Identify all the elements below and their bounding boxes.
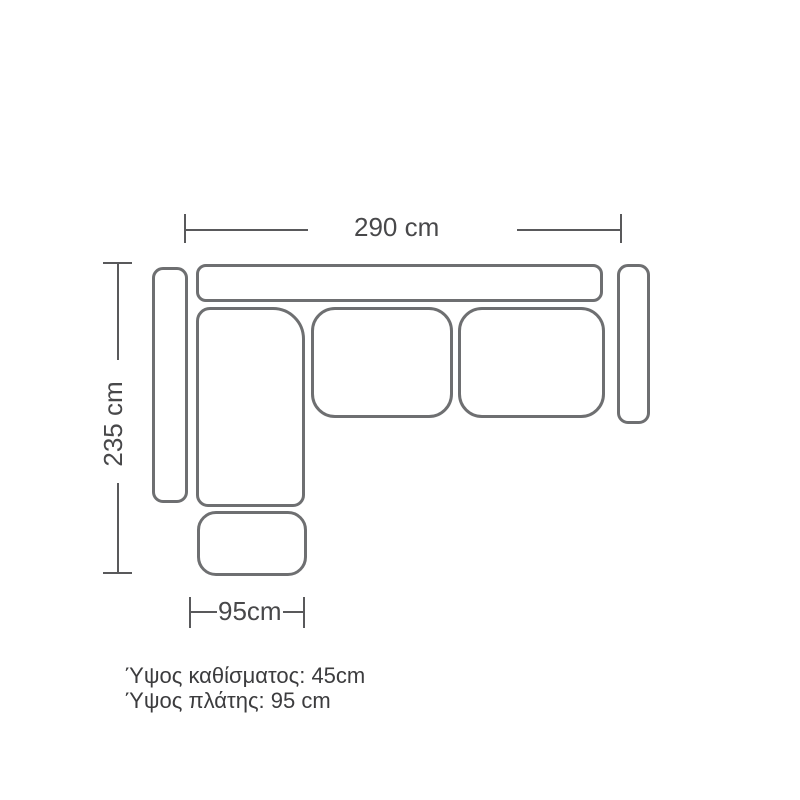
sofa-ottoman (197, 511, 307, 576)
sofa-dimension-diagram: 290 cm 235 cm 95cm Ύψος καθίσματος: 45cm… (0, 0, 800, 800)
sofa-right-cushion (458, 307, 605, 418)
depth-dimension-line-bottom (117, 483, 119, 573)
seat-height-note: Ύψος καθίσματος: 45cm (125, 663, 365, 688)
sofa-right-armrest (617, 264, 650, 424)
width-dimension-label: 290 cm (354, 214, 439, 240)
sofa-backrest (196, 264, 603, 302)
width-dimension-line-left (186, 229, 308, 231)
sofa-middle-cushion (311, 307, 453, 418)
sofa-chaise-seat (196, 307, 305, 507)
chaise-dimension-line-left (191, 611, 217, 613)
width-dimension-line-right (517, 229, 621, 231)
back-height-note: Ύψος πλάτης: 95 cm (125, 688, 331, 713)
sofa-left-armrest (152, 267, 188, 503)
depth-dimension-line-top (117, 263, 119, 360)
depth-dimension-label: 235 cm (100, 381, 126, 466)
chaise-dimension-line-right (283, 611, 304, 613)
chaise-dimension-label: 95cm (218, 598, 282, 624)
